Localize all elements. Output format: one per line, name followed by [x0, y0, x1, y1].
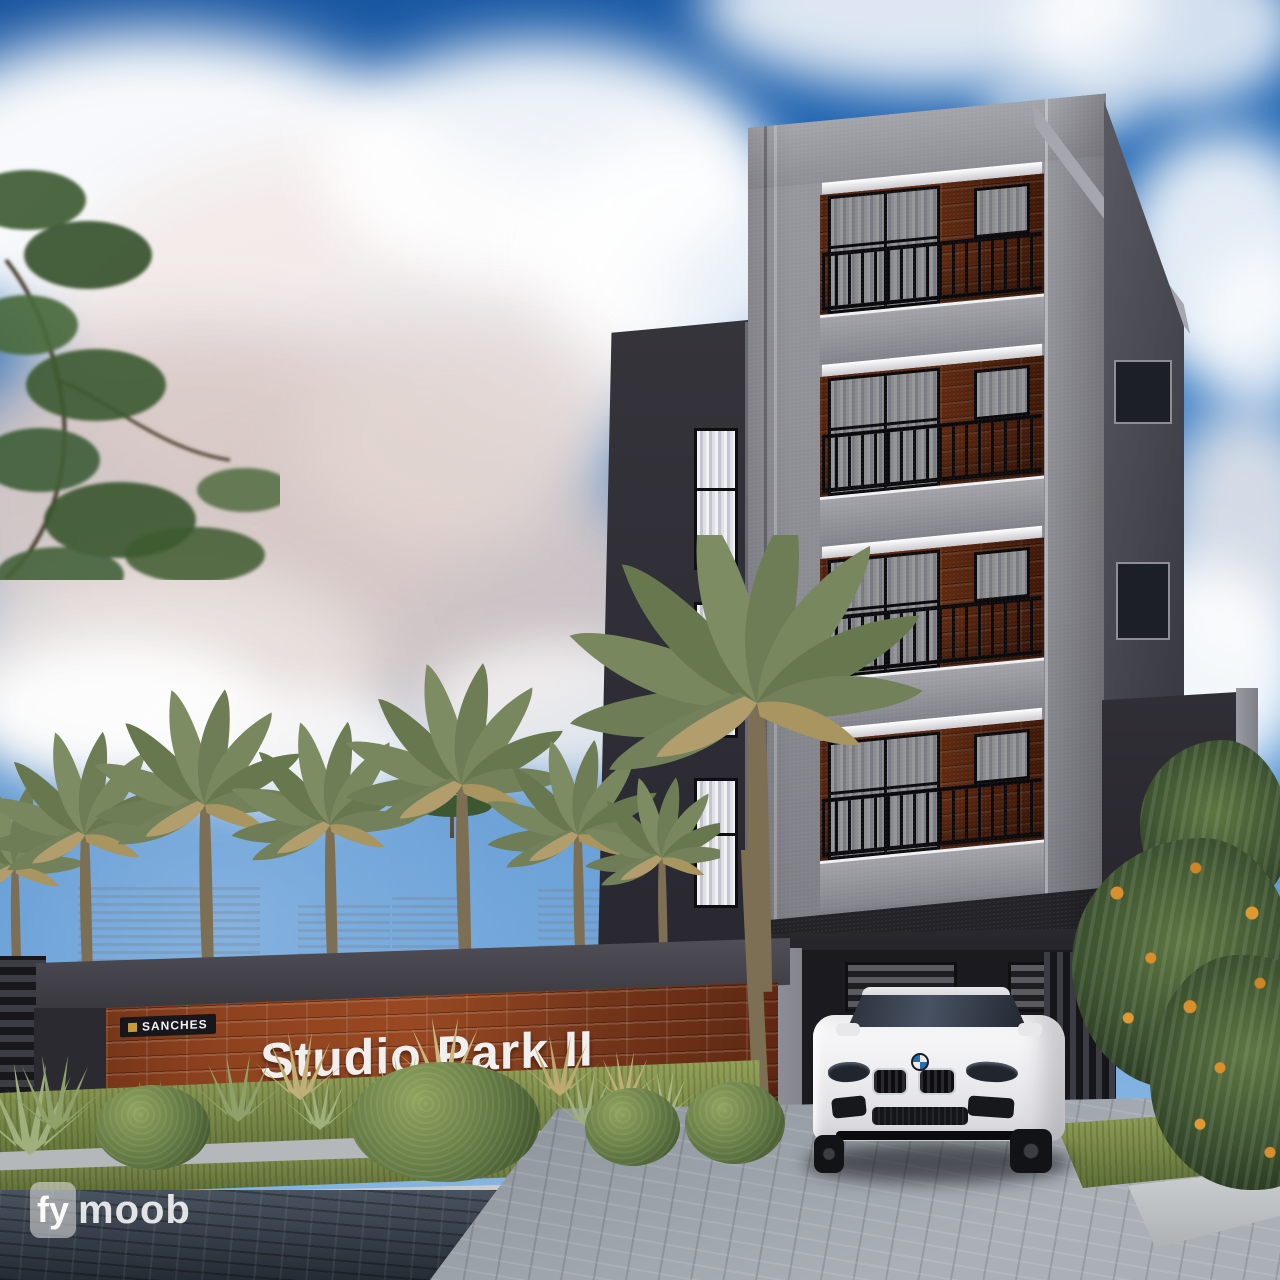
car-intake — [872, 1107, 968, 1125]
car-grille — [918, 1068, 956, 1095]
balcony — [820, 173, 1044, 315]
bush — [585, 1088, 680, 1166]
car-mirror — [1018, 1023, 1042, 1036]
bush — [95, 1085, 210, 1170]
balcony-floor — [820, 161, 1044, 365]
watermark-logo: fy — [30, 1182, 76, 1238]
car-grille — [872, 1068, 908, 1095]
car-intake — [967, 1095, 1014, 1118]
balcony-floor — [820, 343, 1044, 547]
watermark-text: moob — [78, 1182, 191, 1238]
bush — [685, 1082, 785, 1164]
tree-foliage — [0, 170, 280, 580]
car-mirror — [836, 1023, 860, 1036]
car-wheel — [814, 1135, 844, 1173]
side-window — [1116, 562, 1170, 640]
foreground-tree — [0, 160, 280, 580]
side-window — [1114, 360, 1172, 424]
window — [974, 547, 1030, 602]
car-windshield — [848, 995, 1026, 1027]
bmw-roundel-icon — [911, 1053, 929, 1071]
render-scene: SANCHES Studio Park II — [0, 0, 1280, 1280]
cloud — [300, 330, 600, 550]
window — [974, 183, 1030, 238]
parked-car — [810, 985, 1072, 1185]
window — [974, 729, 1030, 784]
car-wheel — [1010, 1129, 1052, 1173]
car-intake — [831, 1095, 867, 1118]
watermark: fy moob — [30, 1182, 191, 1238]
bush — [350, 1062, 540, 1182]
window — [974, 365, 1030, 420]
balcony — [820, 355, 1044, 497]
